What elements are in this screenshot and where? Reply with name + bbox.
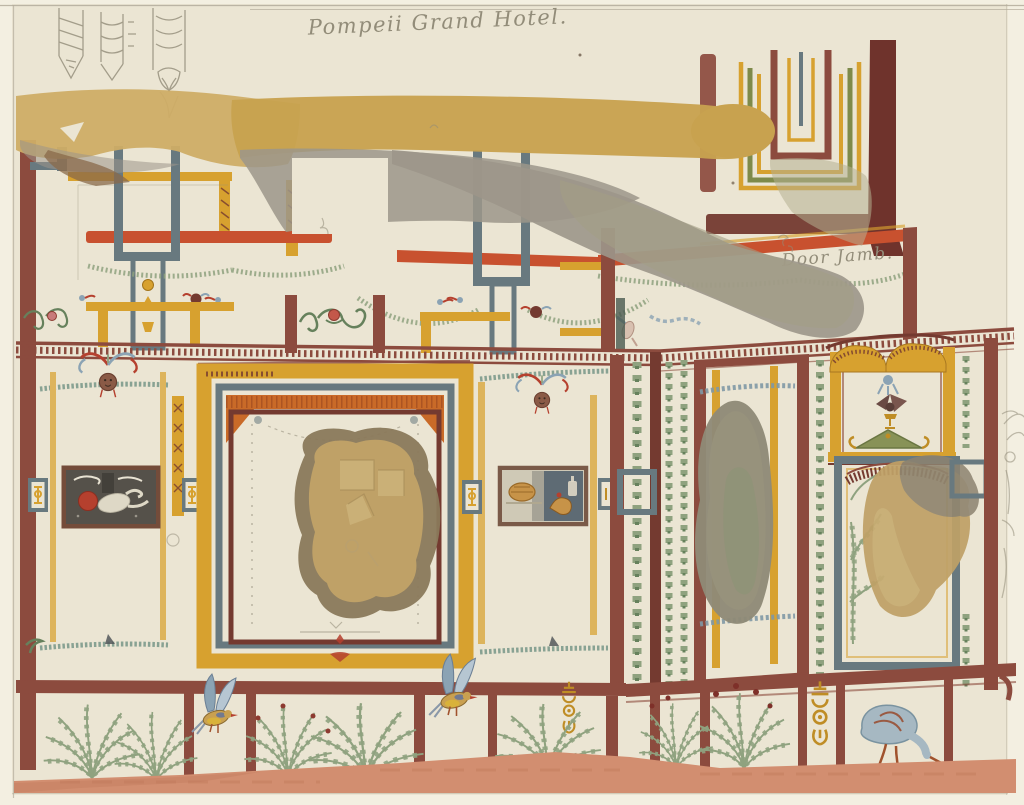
candelabrum-square-1 [28,478,48,512]
watercolor-of-pompeii-wall: Pompeii Grand Hotel. Door Jamb. [0,0,1024,805]
left-wall-border [20,140,36,770]
right-wall-border [984,338,998,690]
central-damage-blob [295,428,441,619]
painting-canvas: Pompeii Grand Hotel. Door Jamb. [0,0,1024,805]
candelabrum-square-3 [462,480,482,514]
right-damage-blob [695,401,773,624]
still-life-picture-1 [64,468,158,526]
wash-paper-gap [292,158,388,234]
corner-bands [610,352,661,687]
still-life-picture-2 [500,468,586,524]
